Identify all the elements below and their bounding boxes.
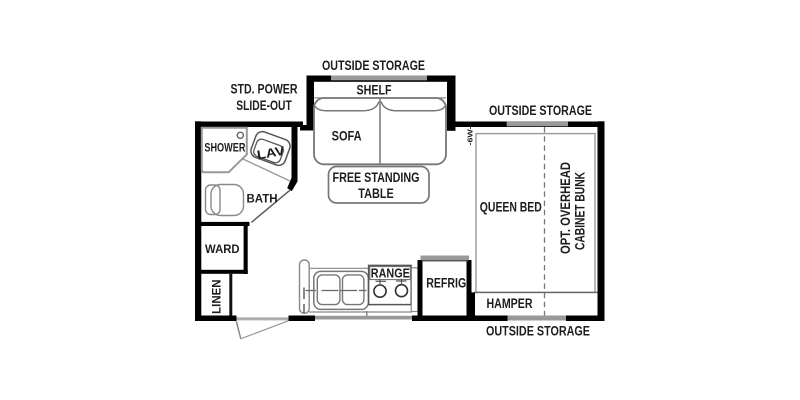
svg-text:SHELF: SHELF (357, 83, 392, 98)
svg-text:LINEN: LINEN (210, 280, 224, 314)
svg-text:TABLE: TABLE (358, 186, 394, 201)
svg-text:OUTSIDE STORAGE: OUTSIDE STORAGE (322, 58, 425, 73)
svg-text:SHOWER: SHOWER (204, 141, 245, 155)
svg-text:REFRIG: REFRIG (426, 275, 466, 290)
svg-text:RANGE: RANGE (371, 267, 410, 281)
svg-text:OUTSIDE STORAGE: OUTSIDE STORAGE (489, 103, 592, 118)
svg-text:OPT. OVERHEAD: OPT. OVERHEAD (558, 162, 573, 254)
svg-text:SOFA: SOFA (332, 128, 362, 143)
svg-text:HAMPER: HAMPER (487, 296, 533, 311)
svg-text:FREE STANDING: FREE STANDING (333, 170, 420, 185)
svg-text:STD. POWER: STD. POWER (231, 82, 298, 97)
svg-text:CABINET BUNK: CABINET BUNK (573, 172, 588, 250)
svg-text:WARD: WARD (205, 242, 240, 256)
svg-text:OUTSIDE STORAGE: OUTSIDE STORAGE (486, 323, 590, 338)
svg-text:BATH: BATH (247, 192, 278, 206)
svg-text:QUEEN BED: QUEEN BED (480, 199, 542, 214)
svg-text:-6W-: -6W- (468, 126, 475, 146)
svg-text:SLIDE-OUT: SLIDE-OUT (236, 98, 292, 113)
